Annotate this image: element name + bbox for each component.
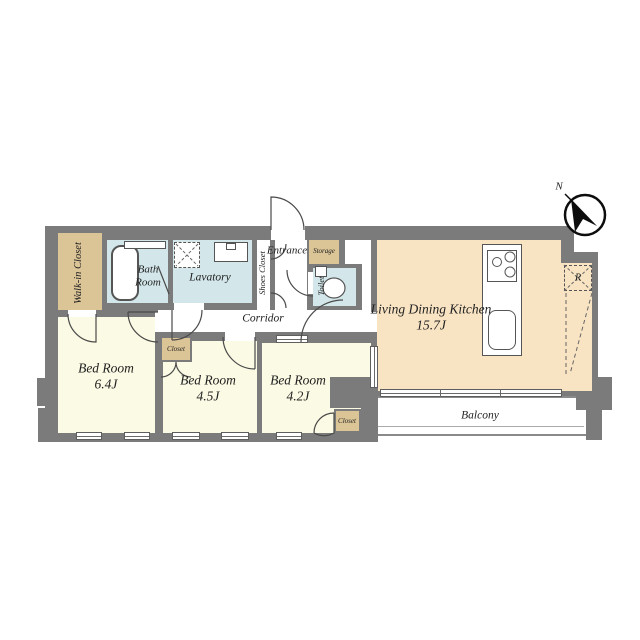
label-balcony: Balcony [461,409,499,422]
sliding-door-bedroom-3 [276,335,308,343]
label-bedroom-2: Bed Room 4.5J [180,372,236,403]
window-bedroom-1-a [76,432,102,440]
label-storage: Storage [313,247,335,255]
wall-sliver-bedroom-3 [361,408,378,442]
window-bedroom-2-a [172,432,200,440]
wall-step-bottom-left [38,408,50,442]
label-ldk-name: Living Dining Kitchen [371,301,492,316]
label-compass-north: N [555,181,562,194]
floor-plan: Walk-in Closet Bath Room Lavatory Shoes … [0,0,640,640]
window-bedroom-1-b [124,432,150,440]
building-corner-cut [574,192,634,252]
sliding-door-tick [440,389,441,397]
toilet-tank [315,266,327,277]
window-bedroom-3 [276,432,302,440]
window-bedroom-2-b [221,432,249,440]
label-bedroom-2-name: Bed Room [180,372,236,387]
sliding-door-tick [500,389,501,397]
label-entrance: Entrance [267,245,307,258]
label-lavatory: Lavatory [189,271,231,284]
label-ldk: Living Dining Kitchen 15.7J [371,301,492,332]
balcony-edge-line [370,426,584,427]
label-shoes-closet: Shoes Closet [258,251,268,295]
label-refrigerator: R [575,272,581,284]
label-bedroom-3-size: 4.2J [270,388,326,404]
label-bedroom-2-size: 4.5J [180,388,236,404]
label-closet-3: Closet [338,417,356,425]
label-closet-2: Closet [167,345,185,353]
washbasin-faucet [226,243,236,250]
label-bedroom-1-name: Bed Room [78,360,134,375]
label-walk-in-closet: Walk-in Closet [73,242,85,304]
opening-wic-door [68,310,96,317]
label-bedroom-1: Bed Room 6.4J [78,360,134,391]
bath-counter [124,241,166,249]
label-ldk-size: 15.7J [371,317,492,333]
wall-pillar-left [37,378,58,406]
kitchen-sink [488,310,516,350]
opening-entrance-door [271,226,305,240]
label-corridor: Corridor [242,312,284,325]
washing-machine-pan [174,242,200,268]
sliding-door-balcony [380,389,562,397]
stove [487,250,517,282]
opening-lavatory-door [174,303,204,310]
label-bath-room: Bath Room [129,263,167,288]
wall-balcony-right [586,409,602,440]
compass-north-tick [565,194,572,201]
label-bedroom-3: Bed Room 4.2J [270,372,326,403]
window-bedroom-3-side [370,346,378,388]
opening-bedroom-2-door [225,332,255,341]
label-bedroom-1-size: 6.4J [78,376,134,392]
opening-bedroom-1-door [155,312,163,332]
label-toilet: Toilet [317,276,327,295]
label-bedroom-3-name: Bed Room [270,372,326,387]
opening-toilet-door [308,272,313,294]
hall-nook-upper [345,240,371,264]
